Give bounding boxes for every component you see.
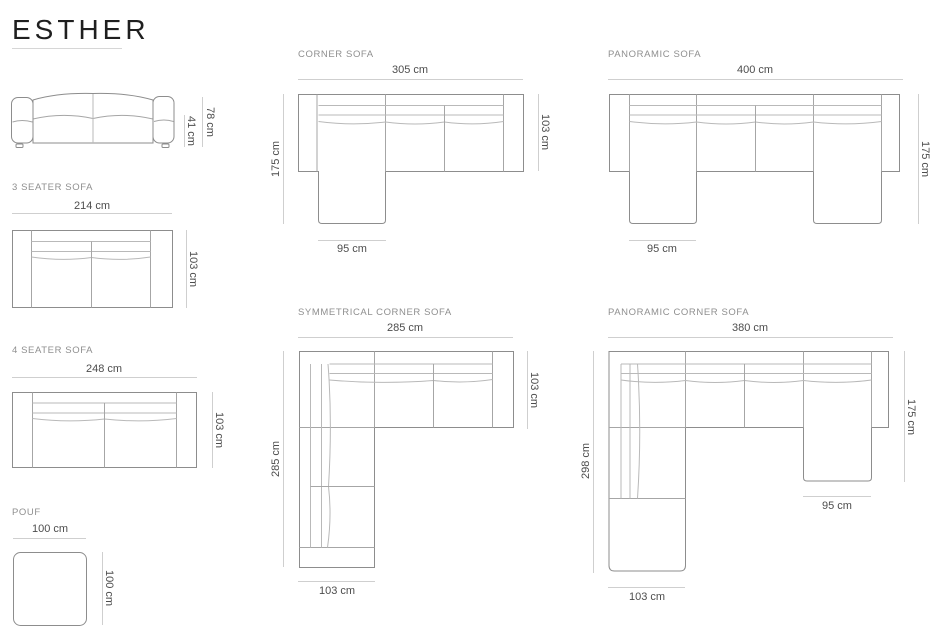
dim-depth-value: 100 cm — [103, 570, 115, 606]
dim-left-length-value: 285 cm — [270, 441, 282, 477]
figure-label: 4 SEATER SOFA — [12, 345, 93, 356]
dim-chaise-width-value: 95 cm — [337, 243, 367, 255]
dim-width-value: 285 cm — [387, 322, 423, 334]
sofa-body — [33, 93, 153, 143]
dim-chaise-depth-line — [283, 94, 284, 224]
dim-chaise-depth-value: 175 cm — [270, 141, 282, 177]
figure-label: POUF — [12, 507, 41, 518]
dim-bottom-width-value: 103 cm — [629, 591, 665, 603]
figure-label: CORNER SOFA — [298, 49, 374, 60]
figure-label: PANORAMIC SOFA — [608, 49, 701, 60]
dim-chaise-depth-value: 175 cm — [919, 141, 930, 177]
dim-width-line — [12, 377, 197, 378]
three-seater-drawing — [12, 230, 173, 308]
symmetrical-corner-sofa-drawing — [299, 351, 514, 568]
dim-chaise-width-value: 95 cm — [647, 243, 677, 255]
dim-bottom-width-value: 103 cm — [319, 585, 355, 597]
dim-left-length-line — [593, 351, 594, 573]
dim-chaise-depth-value: 175 cm — [905, 399, 917, 435]
dim-total-height-value: 78 cm — [204, 107, 216, 137]
dim-left-length-value: 298 cm — [580, 443, 592, 479]
corner-sofa-drawing — [298, 94, 524, 224]
dim-width-line — [298, 337, 513, 338]
front-view-sofa-drawing — [9, 88, 177, 152]
four-seater-drawing — [12, 392, 197, 468]
dim-width-value: 380 cm — [732, 322, 768, 334]
dim-width-value: 248 cm — [86, 363, 122, 375]
figure-label: SYMMETRICAL CORNER SOFA — [298, 307, 452, 318]
dim-width-line — [608, 79, 903, 80]
dim-chaise-width-value: 95 cm — [822, 500, 852, 512]
figure-label: PANORAMIC CORNER SOFA — [608, 307, 749, 318]
dim-depth-value: 103 cm — [539, 114, 551, 150]
dim-bottom-width-line — [608, 587, 685, 588]
panoramic-corner-sofa-drawing — [608, 351, 890, 573]
dim-bottom-width-line — [298, 581, 375, 582]
dim-width-line — [608, 337, 893, 338]
figure-label: 3 SEATER SOFA — [12, 182, 93, 193]
dim-seat-height-value: 41 cm — [185, 116, 197, 146]
dim-chaise-width-line — [629, 240, 696, 241]
dim-depth-value: 103 cm — [528, 372, 540, 408]
dim-left-length-line — [283, 351, 284, 567]
panoramic-sofa-drawing — [609, 94, 900, 224]
dim-chaise-width-line — [318, 240, 386, 241]
dim-width-line — [13, 538, 86, 539]
dim-width-value: 214 cm — [74, 200, 110, 212]
pouf-drawing — [13, 552, 87, 626]
esther-dimension-sheet: ESTHER 78 cm 41 cm 3 SEAT — [0, 0, 930, 630]
sofa-feet — [16, 144, 169, 148]
dim-width-line — [12, 213, 172, 214]
dim-depth-value: 103 cm — [187, 251, 199, 287]
dim-depth-value: 103 cm — [213, 412, 225, 448]
dim-chaise-width-line — [803, 496, 871, 497]
title-underline — [12, 48, 122, 49]
dim-width-value: 400 cm — [737, 64, 773, 76]
dim-width-value: 305 cm — [392, 64, 428, 76]
dim-width-line — [298, 79, 523, 80]
dim-width-value: 100 cm — [32, 523, 68, 535]
page-title: ESTHER — [12, 16, 150, 44]
dim-total-height-line — [202, 97, 203, 147]
